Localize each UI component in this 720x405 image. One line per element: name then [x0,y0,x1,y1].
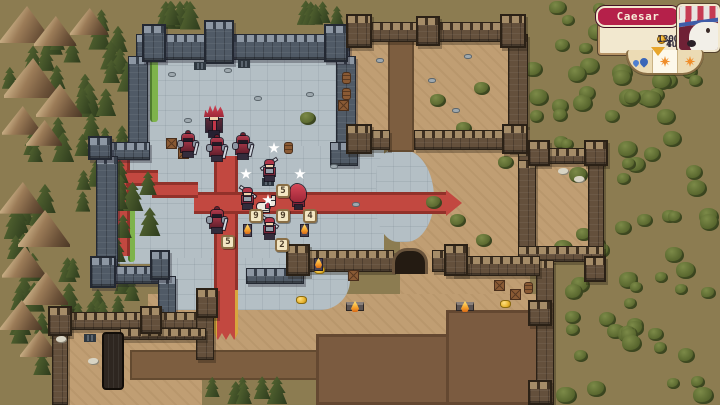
hp-badge: 9 [276,209,290,223]
unit-spearman[interactable] [262,218,277,239]
barrel-prop [284,142,293,154]
grate-prop [194,62,206,70]
bones-prop [558,168,568,174]
bones-prop [88,358,98,364]
olive-tree [622,335,642,352]
knight-sprite-part [212,228,222,233]
olive-tree [687,180,707,197]
unit-spearman[interactable] [262,160,277,181]
knight-sprite-part [212,156,222,161]
olive-tree [624,298,637,309]
gold-prop [296,296,307,304]
ruin-tower [140,306,162,334]
olive-tree [450,214,466,227]
olive-tree [657,109,676,125]
commander-portrait [677,4,720,52]
rock-prop [352,202,360,207]
stone-tower [142,24,166,62]
crate-prop [494,280,505,291]
olive-tree [663,131,682,147]
olive-tree [476,234,492,247]
olive-tree [641,91,661,108]
barrel-prop [524,282,533,294]
gate-prop [102,332,124,390]
rock-prop [452,108,460,113]
unit-mage[interactable] [290,184,306,209]
olive-tree [587,381,606,397]
olive-tree [555,39,571,52]
knight-sprite-part [207,217,212,223]
olive-tree [654,342,668,354]
hp-badge: 9 [249,209,263,223]
rain-icon [633,58,648,66]
sun-icon [685,56,696,67]
weather-forecast [626,50,704,75]
torch-prop [243,224,253,246]
mountain [2,246,46,278]
crate-prop [348,270,359,281]
olive-tree [549,1,566,16]
olive-tree [426,196,442,209]
weather-segment [678,50,702,73]
knight-sprite-part [207,145,212,151]
ruin-tower [584,140,608,166]
rock-prop [254,96,262,101]
rock-prop [330,164,338,169]
crate-prop [338,100,349,111]
olive-tree [529,89,550,106]
pine-tree [267,376,288,404]
bones-prop [574,176,584,182]
ruin-tower [416,16,440,46]
olive-tree [300,112,316,125]
rock-prop [168,72,176,77]
stone-tower [324,24,348,62]
terrain-dirt-road [388,40,414,152]
spearman-sprite-part [265,176,274,181]
spearman-sprite-part [244,197,251,201]
ruin-tower [528,380,552,405]
rain-drop-icon [631,58,639,66]
ruin-wall [518,160,536,260]
stone-wall [136,34,350,60]
ruin-wall [414,130,512,150]
olive-tree [700,214,719,231]
olive-tree [530,110,545,123]
commander-sprite-part [204,104,224,117]
stone-tower [204,20,234,64]
olive-tree [566,324,581,337]
mage-sprite-part [295,205,302,209]
olive-tree [573,95,593,112]
pine-tree [330,6,344,25]
ruin-tower [444,244,468,276]
olive-tree [615,221,631,235]
terrain-red-carpet [152,182,198,198]
mage-sprite-part [290,184,306,202]
spearman-sprite-part [266,227,273,231]
olive-tree [675,284,688,295]
spearman-sprite-part [265,234,274,239]
olive-tree [665,247,684,263]
olive-tree [574,350,588,362]
olive-tree [637,214,652,227]
olive-tree [556,387,576,404]
olive-tree [565,311,581,325]
olive-tree [565,284,584,300]
olive-tree [630,282,643,293]
olive-tree [617,173,632,186]
olive-tree [553,109,568,122]
unit-knight[interactable] [179,134,197,158]
ruin-tower [500,14,526,48]
mountain [0,182,44,214]
olive-tree [667,378,680,389]
olive-tree [622,158,636,170]
barrel-prop [342,72,351,84]
ruin-wall [298,250,394,272]
rock-prop [464,54,472,59]
unit-knight[interactable] [208,138,226,162]
crate-prop [166,138,177,149]
rock-prop [224,68,232,73]
ruin-tower [584,256,606,282]
olive-tree [605,110,620,123]
unit-knight[interactable] [208,210,226,234]
rock-prop [306,92,314,97]
stone-tower [150,250,170,280]
ruin-tower [528,300,552,326]
olive-tree [693,387,714,405]
hp-badge: 4 [303,209,317,223]
knight-sprite-part [183,152,193,157]
barrel-prop [342,88,351,100]
ruin-tower [48,306,72,336]
ruin-wall [120,328,206,340]
unit-spearman[interactable] [240,188,255,209]
olive-tree [613,70,633,87]
torch-prop [314,258,324,280]
ruin-tower [196,288,218,318]
portrait-dog-face [689,22,720,52]
torch-prop [300,224,310,246]
ruin-tower [502,124,528,154]
bones-prop [56,336,66,342]
hp-badge: 2 [275,238,289,252]
knight-sprite-part [178,141,183,147]
dog-sprite-part [272,196,275,200]
hp-badge: 5 [221,235,235,249]
commander-name-plate: Caesar [596,6,680,27]
olive-tree [430,94,446,107]
grate-prop [238,60,250,68]
portrait-nose [687,40,696,47]
arch-prop [392,248,428,274]
olive-tree [648,328,664,341]
olive-tree [668,211,683,223]
knight-sprite-part [233,143,238,149]
knight-sprite-part [238,154,248,159]
olive-tree [676,262,696,279]
gold-prop [500,300,511,308]
spearman-sprite-part [266,169,273,173]
game-map[interactable]: 1300 Turn 4 Caesar 599452 [0,0,720,405]
olive-tree [618,141,639,158]
olive-tree [568,66,587,83]
pine-tree [96,88,116,116]
olive-tree [579,43,592,54]
sun-icon [660,56,671,67]
brazier-prop [346,302,364,320]
grate-prop [84,334,96,342]
olive-tree [689,75,703,87]
olive-tree [701,287,716,299]
olive-tree [562,15,575,26]
olive-tree [686,165,704,180]
portrait-eye [706,28,710,33]
hp-badge: 5 [276,184,290,198]
rock-prop [184,118,192,123]
turn-number: 4 [666,39,672,50]
pine-tree [75,191,90,211]
olive-tree [498,156,514,169]
rock-prop [428,78,436,83]
ruin-tower [528,140,550,166]
gold-row: 1300 [657,35,666,44]
stone-tower [90,256,116,288]
olive-tree [474,82,490,95]
crate-prop [510,289,521,300]
dog-sprite-part [266,203,269,208]
ruin-tower [346,14,372,48]
olive-tree [655,272,668,283]
olive-tree [624,90,641,104]
stone-tower [88,136,112,160]
rock-prop [376,58,384,63]
brazier-prop [456,302,474,320]
olive-tree [678,348,696,363]
olive-tree [644,147,662,162]
terrain-red-carpet [194,192,448,214]
ruin-tower [286,244,310,276]
ruin-tower [346,124,372,154]
commander-name: Caesar [617,10,660,23]
terrain-dirt-road [130,350,322,380]
mountain [2,106,42,135]
rain-drop-icon [638,56,649,67]
unit-knight[interactable] [234,136,252,160]
unit-commander[interactable] [204,104,224,137]
